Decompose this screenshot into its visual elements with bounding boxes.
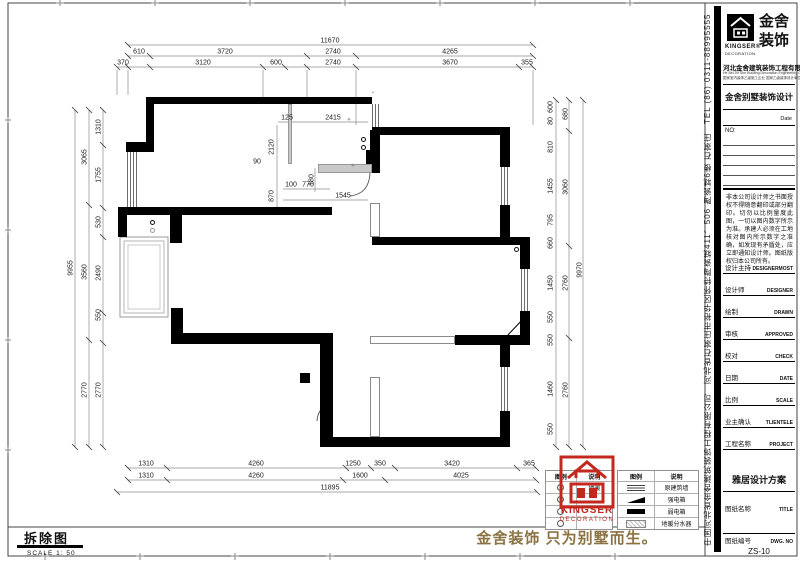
original-wall-icon [627,485,645,491]
light-symbol: ✳ [347,117,351,123]
dimension-label: 2415 [325,115,341,122]
dimension-label: 9970 [577,262,584,278]
dimension-label: 870 [269,190,276,202]
dimension-label: 180 [309,174,316,186]
dimension-label: 3420 [444,461,460,468]
wall-segment [146,97,154,145]
dimension-label: 550 [548,334,555,346]
legend-label: 强电箱 [655,495,698,504]
demolished-wall [370,203,380,237]
field-label: 日期 [725,372,738,382]
dimension-label: 100 [285,182,297,189]
dimension-label: 530 [96,216,103,228]
dimension-label: 2760 [563,382,570,398]
wall-segment [171,333,333,344]
wall-segment [118,207,332,215]
dimension-label: 4260 [248,473,264,480]
field-label-en: DWG. NO [771,539,794,545]
field-label: 设计主持 [725,262,751,272]
brand-cn-2: 装饰 [759,29,789,50]
dimension-label: 4265 [442,49,458,56]
kitchen-counter [318,164,372,173]
drawing-number: ZS-10 [723,547,795,556]
wall-segment [372,127,510,135]
field-label: 设计师 [725,284,745,294]
title-block: KINGSER® DECORATION 金舍 装饰 河北金舍建筑装饰工程有限公司… [723,4,795,554]
dimension-label: 80 [548,117,555,125]
company-note: 国家室内装饰乙级施工企业 国家乙级装饰设计单位 [723,76,795,81]
stamp-brand-text: KINGSER [556,505,618,516]
field-label: 绘制 [725,306,738,316]
dimension-label: 2770 [96,382,103,398]
weak-electric-box-icon [627,509,645,514]
dimension-label: 4260 [248,461,264,468]
dimension-label: 1455 [548,178,555,194]
company-name-en: He Bei Jin She Building Decoration Engin… [723,71,795,75]
field-label-en: DATE [780,376,793,382]
dimension-label: 370 [117,60,129,67]
project-name: 雅居设计方案 [723,468,795,492]
company-side-text: 中国河北省金舍建筑装饰工程有限公司 河北省石家庄市裕华区怀特陶瓷城411、506… [702,8,713,552]
dimension-label: 90 [253,159,261,166]
dimension-label: 1450 [548,275,555,291]
dimension-label: 600 [270,60,282,67]
dimension-label: 1310 [138,461,154,468]
dimension-label: 2490 [96,265,103,281]
project-type: 金舍别墅装饰设计 [723,84,795,110]
legend-label: 弱电箱 [655,507,698,516]
fixture-circle [514,247,519,252]
field-label: 校对 [725,350,738,360]
field-label-en: PROJECT [769,442,793,448]
field-label: 业主确认 [725,416,751,426]
legend-table-right: 图例 说明 原建筑墙 强电箱 弱电箱 地暖分水器 [617,470,699,530]
brand-cn-1: 金舍 [759,10,789,31]
field-label: 工程名称 [725,438,751,448]
dimension-label: 600 [548,101,555,113]
title-underline [17,545,83,548]
fixture-circle [361,145,366,150]
light-symbol: • [372,90,374,96]
kingser-stamp-icon [556,455,618,509]
wall-segment [126,142,154,152]
window-hatch [501,167,509,205]
wall-segment [118,215,127,237]
dimension-label: 1310 [138,473,154,480]
field-label-en: DRAWN [774,310,793,316]
strong-electric-box-icon [627,497,645,503]
fixture-circle [150,228,155,233]
legend-header-symbol: 图例 [618,471,655,481]
window-hatch [521,269,528,311]
stamp-sub-text: DECORATION [556,517,618,523]
window-hatch [127,152,137,207]
field-label: 比例 [725,394,738,404]
wall-segment [300,373,310,383]
dimension-label: 3720 [217,49,233,56]
dimension-label: 3060 [563,179,570,195]
wall-segment [500,345,510,367]
field-label-en: CHECK [775,354,793,360]
light-symbol: ✳ [351,163,355,169]
kitchen-partition [288,104,292,164]
field-label: 审核 [725,328,738,338]
wall-segment [372,237,530,245]
dimension-label: 1250 [345,461,361,468]
dimension-label: 660 [548,237,555,249]
scale-label: SCALE 1: 50 [27,550,76,557]
dimension-label: 9955 [68,260,75,276]
legend-header-label: 说明 [655,472,698,481]
ruled-lines [723,136,795,186]
legend-label: 原建筑墙 [655,483,698,492]
wall-segment [170,215,182,243]
dimension-label: 3560 [82,264,89,280]
dimension-label: 4025 [453,473,469,480]
title-row: 图纸名称TITLE [723,492,795,534]
dimension-label: 810 [548,141,555,153]
drawing-sheet: { "sheet": { "demolition_title": "拆除图", … [0,0,800,567]
no-label: NO: [723,128,795,134]
field-label-en: SCALE [776,398,793,404]
date-label: Date [723,112,795,126]
dimension-label: 1310 [96,119,103,135]
field-label-en: TLIENTELE [766,420,793,426]
logo-brand-sub: DECORATION [725,51,755,56]
dimension-label: 680 [563,108,570,120]
dimension-label: 1460 [548,381,555,397]
field-label: 图纸名称 [725,503,751,513]
wall-segment [500,411,510,447]
brand-slogan: 金舍装饰 只为别墅而生。 [452,527,682,548]
dimension-label: 365 [523,461,535,468]
dimension-label: 2740 [325,60,341,67]
dimension-label: 610 [133,49,145,56]
logo-brand-en: KINGSER® [725,44,761,50]
wall-segment [333,437,510,447]
dwg-row: 图纸编号DWG. NO ZS-10 [723,534,795,556]
demolished-wall [370,336,455,344]
dimension-label: 2770 [82,382,89,398]
field-label-en: APPROVED [765,332,793,338]
field-label-en: DESIGNERMOST [752,266,793,272]
wall-segment [146,97,372,104]
wall-segment [500,127,510,167]
dimension-label: 350 [374,461,386,468]
field-label-en: TITLE [779,507,793,513]
dimension-label: 11895 [321,485,340,492]
dimension-label: 1755 [96,167,103,183]
field-label-en: DESIGNER [767,288,793,294]
window-hatch [372,104,381,127]
dimension-label: 2760 [563,275,570,291]
dimension-label: 11670 [321,38,340,45]
title-block-rows: 设计主持DESIGNERMOST 设计师DESIGNER 绘制DRAWN 审核A… [723,252,795,450]
fixture-circle [150,220,155,225]
dimension-label: 1545 [335,193,351,200]
dimension-label: 550 [548,423,555,435]
dimension-label: 2120 [269,139,276,155]
dimension-label: 3065 [82,149,89,165]
dimension-label: 355 [521,60,533,67]
wall-segment [520,245,530,269]
dimension-label: 1600 [352,473,368,480]
dimension-label: 3120 [195,60,211,67]
dimension-label: 2740 [325,49,341,56]
dimension-label: 770 [302,182,314,189]
dimension-label: 3670 [442,60,458,67]
dimension-label: 795 [548,214,555,226]
wall-segment [455,335,530,345]
dimension-label: 550 [96,309,103,321]
field-label: 图纸编号 [725,535,751,545]
kingser-logo-icon [727,14,754,41]
wall-segment [520,311,530,337]
window-hatch [501,367,508,411]
demolished-wall [370,377,380,437]
dimension-label: 550 [548,311,555,323]
wall-segment [320,333,333,447]
title-block-bar [714,6,721,552]
fixture-circle [361,137,366,142]
